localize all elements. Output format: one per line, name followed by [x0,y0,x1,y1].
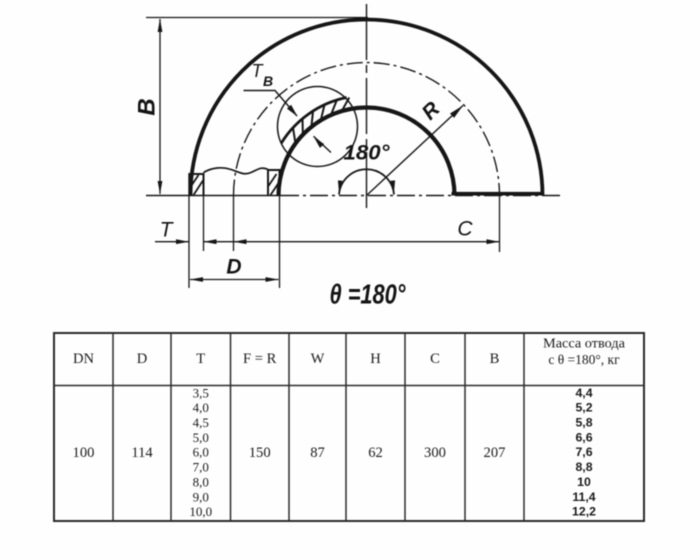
svg-text:62: 62 [368,445,383,461]
svg-text:150: 150 [249,445,271,461]
svg-text:8,0: 8,0 [193,474,209,489]
svg-text:114: 114 [131,445,153,461]
svg-text:5,2: 5,2 [575,401,592,415]
svg-text:7,6: 7,6 [575,445,592,459]
svg-text:B: B [134,98,161,115]
svg-text:9,0: 9,0 [193,489,209,504]
svg-text:4,5: 4,5 [193,415,209,430]
svg-text:7,0: 7,0 [193,460,209,475]
svg-text:3,5: 3,5 [193,385,209,400]
svg-text:D: D [137,351,148,367]
svg-text:4,4: 4,4 [575,386,592,400]
svg-text:C: C [430,351,440,367]
svg-text:5,0: 5,0 [193,430,209,445]
svg-text:C: C [457,218,473,241]
svg-text:F = R: F = R [243,351,277,367]
svg-text:5,8: 5,8 [575,416,592,430]
svg-text:10,0: 10,0 [189,504,212,519]
svg-text:6,6: 6,6 [575,430,592,444]
svg-text:6,0: 6,0 [193,445,209,460]
svg-text:87: 87 [310,445,325,461]
svg-text:θ =180°: θ =180° [330,279,407,310]
svg-text:180°: 180° [344,142,391,165]
svg-text:R: R [418,97,446,125]
svg-text:11,4: 11,4 [572,490,595,504]
svg-text:H: H [370,351,381,367]
svg-text:10: 10 [577,475,591,489]
svg-text:4,0: 4,0 [193,400,209,415]
svg-text:12,2: 12,2 [572,505,596,519]
svg-text:с θ =180°, кг: с θ =180°, кг [548,352,620,367]
svg-text:Масса отвода: Масса отвода [543,336,625,351]
svg-text:B: B [263,73,273,89]
svg-text:300: 300 [424,445,446,461]
svg-text:100: 100 [73,445,95,461]
svg-text:T: T [196,351,205,367]
svg-text:T: T [160,219,175,242]
svg-text:B: B [490,351,500,367]
svg-text:W: W [311,351,325,367]
svg-text:D: D [226,256,241,279]
svg-text:8,8: 8,8 [575,460,592,474]
svg-text:DN: DN [73,351,95,367]
svg-text:207: 207 [484,445,506,461]
